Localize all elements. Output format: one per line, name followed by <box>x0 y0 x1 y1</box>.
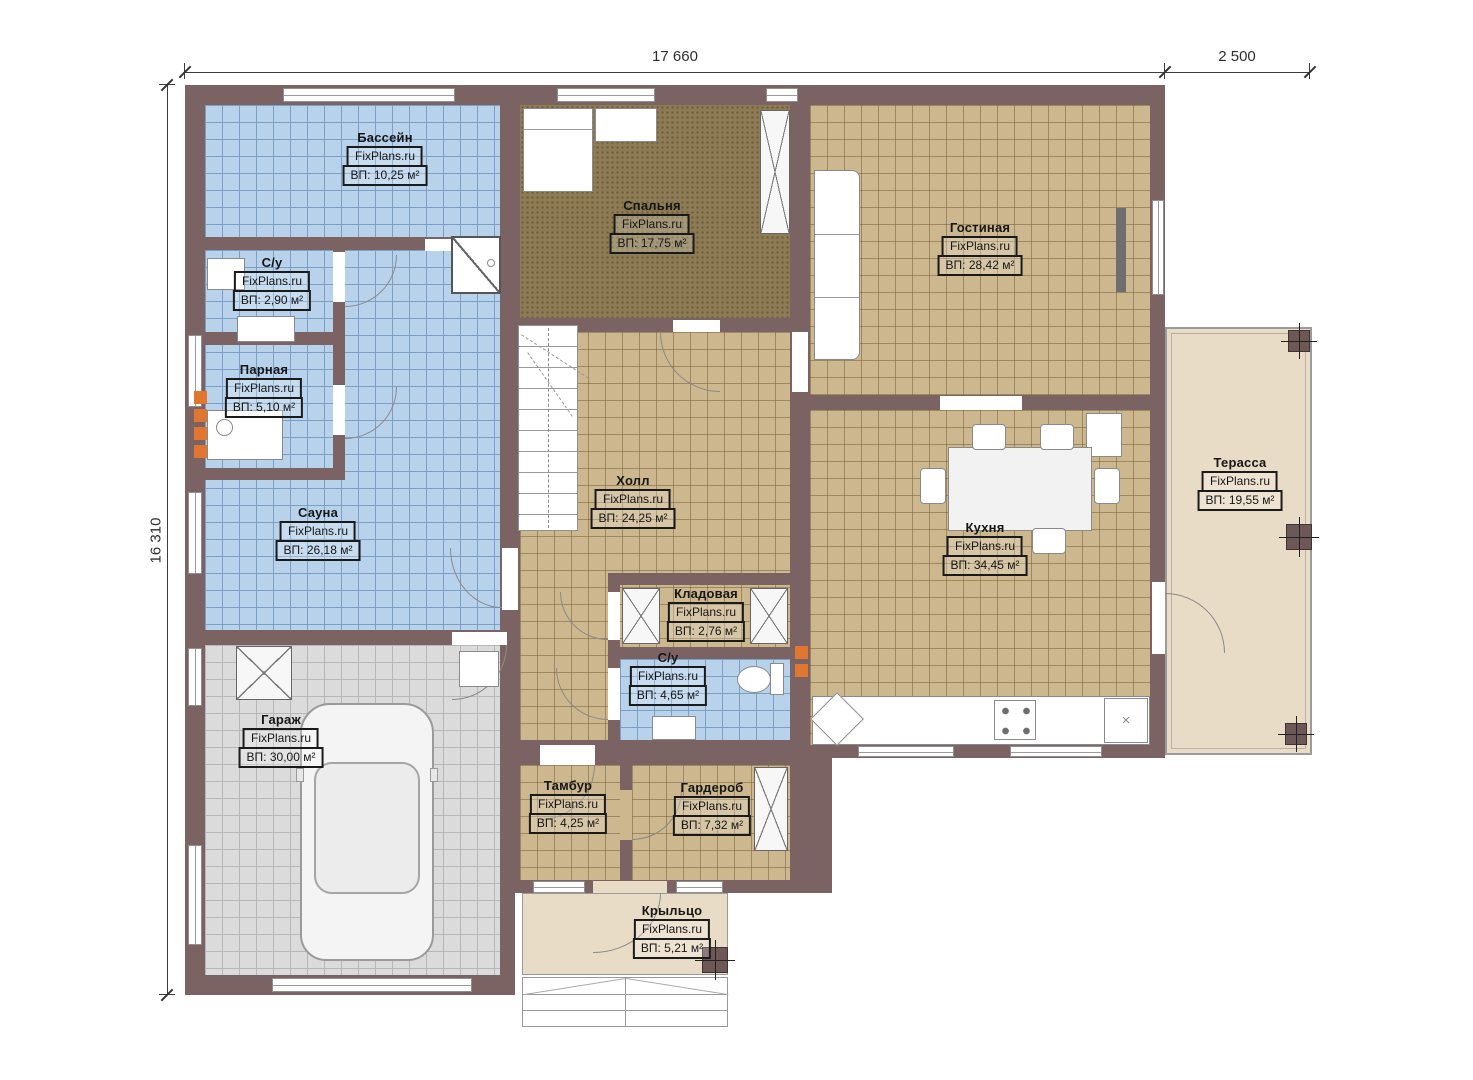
watermark: FixPlans.ru <box>614 214 690 235</box>
room-name: Терасса <box>1214 455 1267 470</box>
room-area: ВП: 30,00 м² <box>239 747 324 768</box>
bedroom-wardrobe <box>760 110 790 234</box>
sofa-cushion-line <box>815 234 859 235</box>
wall-steam-bottom <box>205 468 333 480</box>
watermark: FixPlans.ru <box>347 146 423 167</box>
window-bedroom-small <box>766 88 798 102</box>
room-name: Кухня <box>966 520 1005 535</box>
kitchen-counter <box>812 696 1150 745</box>
door-gap-steam <box>333 385 345 435</box>
door-gap-pantry <box>608 592 620 640</box>
room-name: Гостиная <box>950 220 1010 235</box>
room-area: ВП: 28,42 м² <box>938 255 1023 276</box>
watermark: FixPlans.ru <box>942 236 1018 257</box>
door-gap-hall-vestibule <box>540 745 595 765</box>
dimension-left: 16 310 <box>148 501 165 581</box>
room-name: Кладовая <box>674 586 738 601</box>
heat-marker <box>194 427 207 440</box>
wall-pantry-top <box>608 573 790 585</box>
dimension-line-left <box>167 85 168 995</box>
car-mirror-right <box>430 768 438 782</box>
floor-plan-canvas: 17 660 2 500 16 310 <box>0 0 1473 1080</box>
room-label-vestibule: Тамбур FixPlans.ru ВП: 4,25 м² <box>529 778 607 834</box>
room-area: ВП: 4,65 м² <box>629 685 707 706</box>
room-area: ВП: 24,25 м² <box>591 508 676 529</box>
heat-marker <box>194 391 207 404</box>
room-label-terrace: Терасса FixPlans.ru ВП: 19,55 м² <box>1198 455 1283 511</box>
watermark: FixPlans.ru <box>634 919 710 940</box>
toilet-tank <box>770 663 784 695</box>
room-label-sauna: Сауна FixPlans.ru ВП: 26,18 м² <box>276 505 361 561</box>
window-left-garage-lower <box>188 845 202 945</box>
step-diagonal <box>524 978 627 995</box>
window-kitchen-bottom-2 <box>1010 746 1102 757</box>
dresser <box>595 108 657 142</box>
room-name: Парная <box>240 362 288 377</box>
room-area: ВП: 5,21 м² <box>633 938 711 959</box>
car-roof <box>314 762 420 894</box>
dining-table <box>948 447 1092 531</box>
room-label-wardrobe: Гардероб FixPlans.ru ВП: 7,32 м² <box>673 780 751 836</box>
watermark: FixPlans.ru <box>234 271 310 292</box>
x-marker: × <box>1122 712 1131 729</box>
window-wardrobe-bottom <box>676 881 723 893</box>
car-mirror-left <box>296 768 304 782</box>
room-label-kitchen: Кухня FixPlans.ru ВП: 34,45 м² <box>943 520 1028 576</box>
watermark: FixPlans.ru <box>668 602 744 623</box>
window-left-garage-upper <box>188 648 202 706</box>
pantry-closet-left <box>622 588 660 644</box>
chair <box>1094 468 1120 504</box>
room-label-porch: Крыльцо FixPlans.ru ВП: 5,21 м² <box>633 903 711 959</box>
room-area: ВП: 4,25 м² <box>529 813 607 834</box>
garage-equipment <box>459 651 499 687</box>
toilet-bowl <box>737 666 771 693</box>
step-center-line <box>625 978 626 1026</box>
chair <box>920 468 946 504</box>
dimension-top-main: 17 660 <box>652 48 698 65</box>
room-name: Гараж <box>261 712 301 727</box>
room-name: Бассейн <box>357 130 413 145</box>
room-name: Спальня <box>623 198 681 213</box>
chair <box>972 424 1006 450</box>
door-gap-wc1 <box>333 252 345 302</box>
front-door-gap <box>593 881 667 893</box>
watermark: FixPlans.ru <box>674 796 750 817</box>
room-label-wc2: С/у FixPlans.ru ВП: 4,65 м² <box>629 650 707 706</box>
heater-unit <box>237 316 295 342</box>
window-vestibule-bottom <box>533 881 585 893</box>
window-left-sauna <box>188 492 202 574</box>
heat-marker <box>194 409 207 422</box>
room-area: ВП: 2,76 м² <box>667 621 745 642</box>
watermark: FixPlans.ru <box>947 536 1023 557</box>
watermark: FixPlans.ru <box>630 666 706 687</box>
washbasin-wc2 <box>652 716 696 740</box>
step-diagonal <box>626 978 729 995</box>
stair-winder-line <box>527 352 573 416</box>
room-name: Крыльцо <box>642 903 703 918</box>
room-label-hall: Холл FixPlans.ru ВП: 24,25 м² <box>591 473 676 529</box>
room-name: Холл <box>616 473 649 488</box>
heat-marker <box>795 646 808 659</box>
wardrobe-closet <box>754 767 788 851</box>
window-pool-top <box>283 88 455 102</box>
room-area: ВП: 5,10 м² <box>225 397 303 418</box>
room-label-wc1: С/у FixPlans.ru ВП: 2,90 м² <box>233 255 311 311</box>
door-gap-bedroom <box>673 320 720 332</box>
room-label-pool: Бассейн FixPlans.ru ВП: 10,25 м² <box>343 130 428 186</box>
room-area: ВП: 2,90 м² <box>233 290 311 311</box>
room-label-pantry: Кладовая FixPlans.ru ВП: 2,76 м² <box>667 586 745 642</box>
opening-living-kitchen <box>940 396 1022 410</box>
room-area: ВП: 10,25 м² <box>343 165 428 186</box>
watermark: FixPlans.ru <box>226 378 302 399</box>
heat-marker <box>795 664 808 677</box>
chair <box>1032 528 1066 554</box>
room-area: ВП: 19,55 м² <box>1198 490 1283 511</box>
terrace-pillar-bottom <box>1285 723 1307 745</box>
room-area: ВП: 34,45 м² <box>943 555 1028 576</box>
room-label-living: Гостиная FixPlans.ru ВП: 28,42 м² <box>938 220 1023 276</box>
terrace-pillar-middle <box>1286 524 1312 550</box>
shower-head-icon <box>487 259 495 267</box>
pantry-closet-right <box>750 588 788 644</box>
bed <box>523 108 593 192</box>
bed-pillow-line <box>524 129 592 130</box>
dimension-line-top-main <box>185 72 1165 73</box>
room-name: Тамбур <box>544 778 592 793</box>
dimension-top-terrace: 2 500 <box>1218 48 1256 65</box>
window-bedroom-top <box>557 88 655 102</box>
room-name: Сауна <box>298 505 338 520</box>
room-name: Гардероб <box>680 780 743 795</box>
counter-end-unit: × <box>1104 698 1148 743</box>
sofa <box>814 170 860 360</box>
heat-marker <box>194 445 207 458</box>
garage-hatch <box>236 646 292 700</box>
porch-steps <box>522 977 728 1027</box>
door-gap-wc2 <box>608 668 620 720</box>
sofa-cushion-line <box>815 297 859 298</box>
room-area: ВП: 26,18 м² <box>276 540 361 561</box>
room-area: ВП: 7,32 м² <box>673 815 751 836</box>
stove <box>994 700 1036 740</box>
room-label-steam: Парная FixPlans.ru ВП: 5,10 м² <box>225 362 303 418</box>
opening-hall-living <box>792 332 808 392</box>
watermark: FixPlans.ru <box>530 794 606 815</box>
window-living-right <box>1152 200 1164 295</box>
door-gap-hall-sauna <box>502 548 518 610</box>
room-area: ВП: 17,75 м² <box>610 233 695 254</box>
door-gap-terrace <box>1152 582 1165 654</box>
staircase <box>518 325 578 531</box>
watermark: FixPlans.ru <box>243 728 319 749</box>
window-kitchen-bottom-1 <box>858 746 954 757</box>
watermark: FixPlans.ru <box>280 521 356 542</box>
sauna-stove-icon <box>216 419 233 436</box>
door-gap-sauna-garage <box>452 632 507 645</box>
dimension-line-top-terrace <box>1165 72 1310 73</box>
terrace-pillar-top <box>1288 330 1310 352</box>
room-name: С/у <box>658 650 679 665</box>
door-gap-vestibule-wardrobe <box>620 790 632 840</box>
chair <box>1040 424 1074 450</box>
watermark: FixPlans.ru <box>1202 471 1278 492</box>
room-label-bedroom: Спальня FixPlans.ru ВП: 17,75 м² <box>610 198 695 254</box>
garage-door <box>272 978 472 992</box>
room-name: С/у <box>262 255 283 270</box>
watermark: FixPlans.ru <box>595 489 671 510</box>
room-label-garage: Гараж FixPlans.ru ВП: 30,00 м² <box>239 712 324 768</box>
tv <box>1116 208 1126 292</box>
